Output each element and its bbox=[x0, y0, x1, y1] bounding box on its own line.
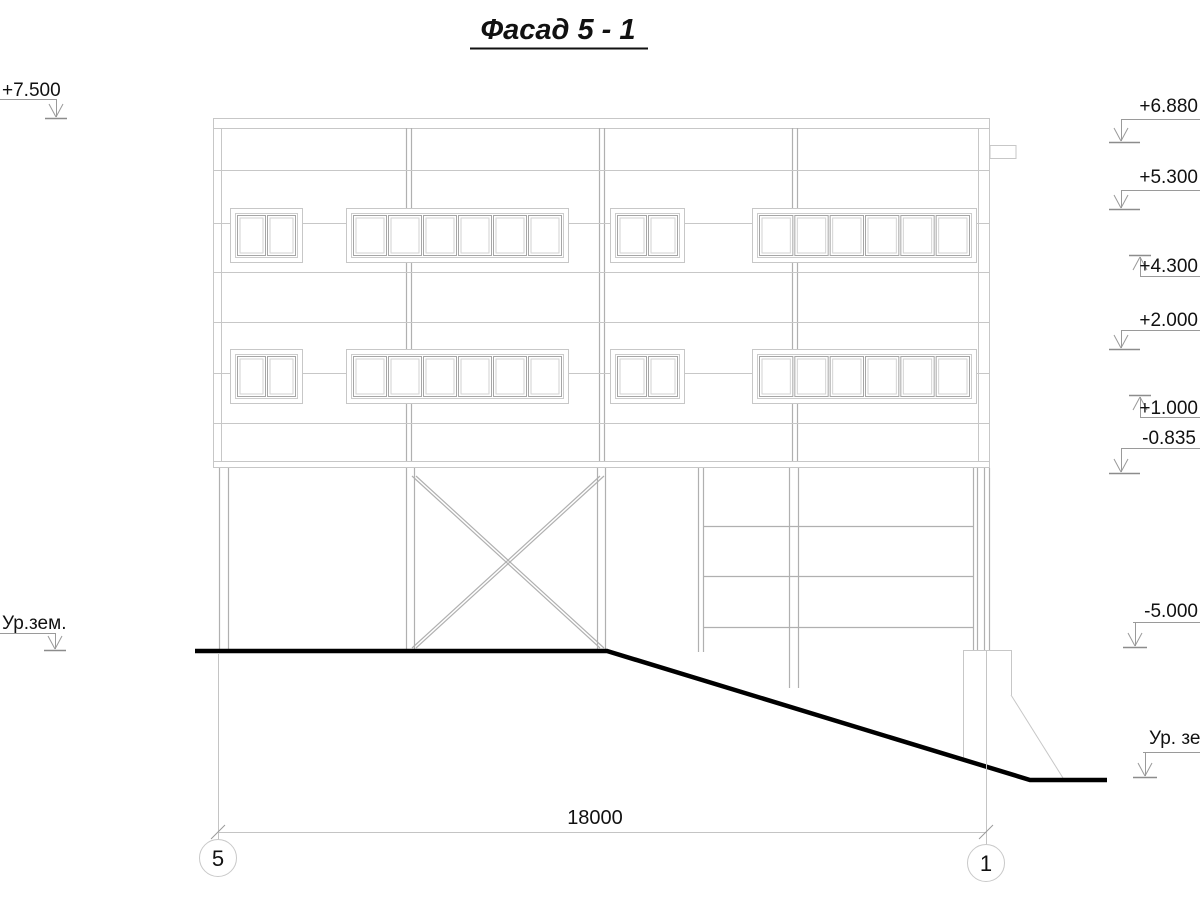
window-pane bbox=[936, 216, 969, 256]
window-pane bbox=[830, 357, 863, 397]
window-pane bbox=[618, 216, 647, 256]
elevation-label: +1.000 bbox=[1139, 398, 1198, 419]
level-arrow-icon bbox=[1114, 459, 1121, 472]
window-pane bbox=[494, 357, 527, 397]
level-arrow-icon bbox=[1145, 763, 1152, 776]
facade-wall bbox=[213, 119, 1016, 468]
level-arrow-icon bbox=[1128, 633, 1135, 646]
window-pane bbox=[494, 216, 527, 256]
level-arrow-icon bbox=[55, 636, 62, 649]
window-bands bbox=[231, 209, 977, 404]
axis-number: 5 bbox=[212, 846, 224, 871]
window-pane bbox=[795, 357, 828, 397]
ground-level-label: Ур.зем. bbox=[2, 613, 66, 634]
level-arrow-icon bbox=[1121, 195, 1128, 208]
elevation-label: +7.500 bbox=[2, 80, 61, 101]
window-pane bbox=[529, 216, 562, 256]
level-arrow-icon bbox=[1135, 633, 1142, 646]
window-pane bbox=[760, 357, 793, 397]
window-pane bbox=[459, 357, 492, 397]
window-pane bbox=[354, 357, 387, 397]
window-pane bbox=[354, 216, 387, 256]
understructure bbox=[195, 468, 1107, 780]
level-arrow-icon bbox=[1121, 335, 1128, 348]
window-pane bbox=[866, 216, 899, 256]
window-pane bbox=[389, 357, 422, 397]
dimension-value: 18000 bbox=[567, 807, 623, 829]
level-arrow-icon bbox=[1114, 128, 1121, 141]
cross-bracing bbox=[412, 476, 604, 648]
elevation-drawing: Фасад 5 - 1 bbox=[0, 0, 1200, 900]
elevation-label: +2.000 bbox=[1139, 310, 1198, 331]
window-pane bbox=[649, 357, 678, 397]
window-pane bbox=[529, 357, 562, 397]
window-pane bbox=[424, 357, 457, 397]
axis-number: 1 bbox=[980, 851, 992, 876]
elevation-labels: +7.500 Ур.зем. +6.880 +5.300 +4.300 +2.0… bbox=[2, 80, 1200, 749]
window-pane bbox=[901, 357, 934, 397]
level-arrow-icon bbox=[1114, 335, 1121, 348]
level-arrow-icon bbox=[49, 104, 56, 117]
elevation-label: +6.880 bbox=[1139, 96, 1198, 117]
elevation-label: +4.300 bbox=[1139, 256, 1198, 277]
window-pane bbox=[238, 216, 266, 256]
window-pane bbox=[866, 357, 899, 397]
window-pane bbox=[936, 357, 969, 397]
window-pane bbox=[901, 216, 934, 256]
window-pane bbox=[795, 216, 828, 256]
dimension-string: 18000 5 1 bbox=[200, 651, 1005, 882]
window-pane bbox=[618, 357, 647, 397]
stair-landing-lines bbox=[703, 527, 973, 628]
ground-level-label: Ур. зе bbox=[1149, 728, 1200, 749]
window-pane bbox=[830, 216, 863, 256]
level-arrow-icon bbox=[48, 636, 55, 649]
facade-drawing-sheet: Фасад 5 - 1 bbox=[0, 0, 1200, 900]
elevation-label: -5.000 bbox=[1144, 601, 1198, 622]
window-pane bbox=[649, 216, 678, 256]
facade-column-lines bbox=[407, 128, 798, 461]
page-title: Фасад 5 - 1 bbox=[480, 14, 635, 46]
window-pane bbox=[268, 216, 296, 256]
window-pane bbox=[760, 216, 793, 256]
window-pane bbox=[424, 216, 457, 256]
window-pane bbox=[389, 216, 422, 256]
elevation-label: -0.835 bbox=[1142, 428, 1196, 449]
foundation-block bbox=[963, 650, 1063, 778]
level-arrow-icon bbox=[1121, 459, 1128, 472]
window-pane bbox=[238, 357, 266, 397]
columns bbox=[220, 468, 990, 688]
level-arrow-icon bbox=[56, 104, 63, 117]
window-pane bbox=[268, 357, 296, 397]
ground-profile-line bbox=[195, 651, 1107, 780]
level-arrow-icon bbox=[1121, 128, 1128, 141]
level-arrow-icon bbox=[1138, 763, 1145, 776]
window-pane bbox=[459, 216, 492, 256]
elevation-label: +5.300 bbox=[1139, 167, 1198, 188]
roof-scupper bbox=[990, 146, 1016, 159]
level-arrow-icon bbox=[1114, 195, 1121, 208]
drawing-title-block: Фасад 5 - 1 bbox=[470, 14, 648, 49]
